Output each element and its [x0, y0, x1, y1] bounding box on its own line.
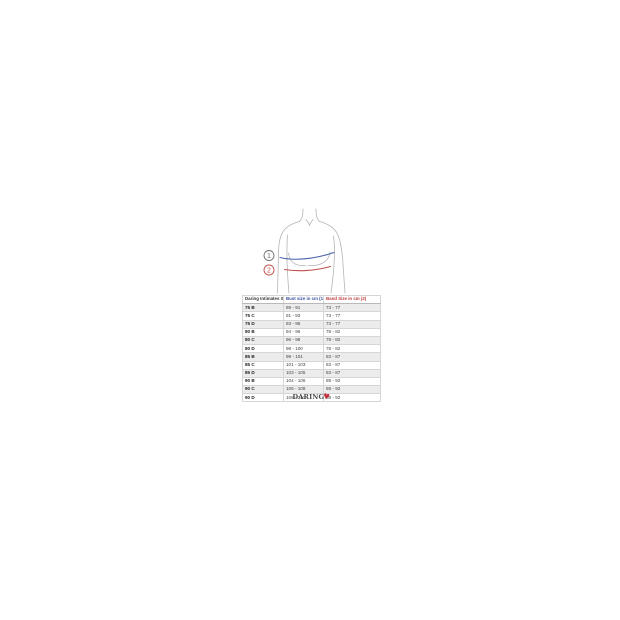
size-cell: 85 C	[243, 361, 284, 369]
size-cell: 90 B	[243, 377, 284, 385]
table-row: 85 B 99 - 101 83 - 87	[243, 353, 381, 361]
brand-logo: DARING ♥	[294, 390, 328, 403]
table-row: 75 C 91 - 93 73 - 77	[243, 312, 381, 320]
size-cell: 75 D	[243, 320, 284, 328]
size-cell: 75 C	[243, 312, 284, 320]
size-cell: 75 B	[243, 304, 284, 312]
torso-outline	[278, 209, 346, 293]
band-cell: 83 - 87	[324, 353, 381, 361]
brand-logo-text: DARING	[292, 393, 324, 401]
band-cell: 78 - 82	[324, 336, 381, 344]
marker-2-label: 2	[267, 268, 271, 275]
bust-cell: 93 - 95	[284, 320, 324, 328]
bust-cell: 94 - 96	[284, 328, 324, 336]
col-header-band: Band Size in cm (2)	[324, 296, 381, 304]
bust-cell: 104 - 106	[284, 377, 324, 385]
marker-1-label: 1	[267, 253, 271, 260]
bust-cell: 99 - 101	[284, 353, 324, 361]
size-cell: 80 C	[243, 336, 284, 344]
band-cell: 73 - 77	[324, 320, 381, 328]
table-row: 80 C 96 - 98 78 - 82	[243, 336, 381, 344]
bust-cell: 98 - 100	[284, 345, 324, 353]
size-cell: 80 D	[243, 345, 284, 353]
bust-cell: 96 - 98	[284, 336, 324, 344]
band-cell: 83 - 87	[324, 369, 381, 377]
col-header-bust: Bust size in cm (1)	[284, 296, 324, 304]
bust-measurement-diagram: 1 2	[256, 204, 360, 296]
size-cell: 85 B	[243, 353, 284, 361]
size-table: Daring Intimates Size Bust size in cm (1…	[242, 295, 381, 402]
heart-icon: ♥	[322, 392, 330, 401]
marker-2: 2	[264, 265, 274, 275]
bust-cell: 103 - 105	[284, 369, 324, 377]
table-row: 80 D 98 - 100 78 - 82	[243, 345, 381, 353]
bust-cell: 91 - 93	[284, 312, 324, 320]
size-cell: 80 B	[243, 328, 284, 336]
table-row: 85 D 103 - 105 83 - 87	[243, 369, 381, 377]
table-row: 75 B 89 - 91 73 - 77	[243, 304, 381, 312]
band-cell: 88 - 92	[324, 386, 381, 394]
band-cell: 78 - 82	[324, 345, 381, 353]
size-chart-image: 1 2 Daring Intimates Size Bust size in c…	[0, 0, 620, 620]
table-row: 90 B 104 - 106 88 - 92	[243, 377, 381, 385]
band-cell: 73 - 77	[324, 312, 381, 320]
size-cell: 90 C	[243, 386, 284, 394]
table-row: 75 D 93 - 95 73 - 77	[243, 320, 381, 328]
band-line	[285, 267, 331, 271]
size-cell: 85 D	[243, 369, 284, 377]
bust-cell: 101 - 103	[284, 361, 324, 369]
table-header-row: Daring Intimates Size Bust size in cm (1…	[243, 296, 381, 304]
marker-1: 1	[264, 251, 274, 261]
table-row: 80 B 94 - 96 78 - 82	[243, 328, 381, 336]
band-cell: 73 - 77	[324, 304, 381, 312]
table-row: 85 C 101 - 103 83 - 87	[243, 361, 381, 369]
band-cell: 88 - 92	[324, 394, 381, 402]
bust-cell: 89 - 91	[284, 304, 324, 312]
bust-line	[280, 253, 334, 260]
band-cell: 83 - 87	[324, 361, 381, 369]
size-cell: 90 D	[243, 394, 284, 402]
col-header-size: Daring Intimates Size	[243, 296, 284, 304]
band-cell: 78 - 82	[324, 328, 381, 336]
band-cell: 88 - 92	[324, 377, 381, 385]
